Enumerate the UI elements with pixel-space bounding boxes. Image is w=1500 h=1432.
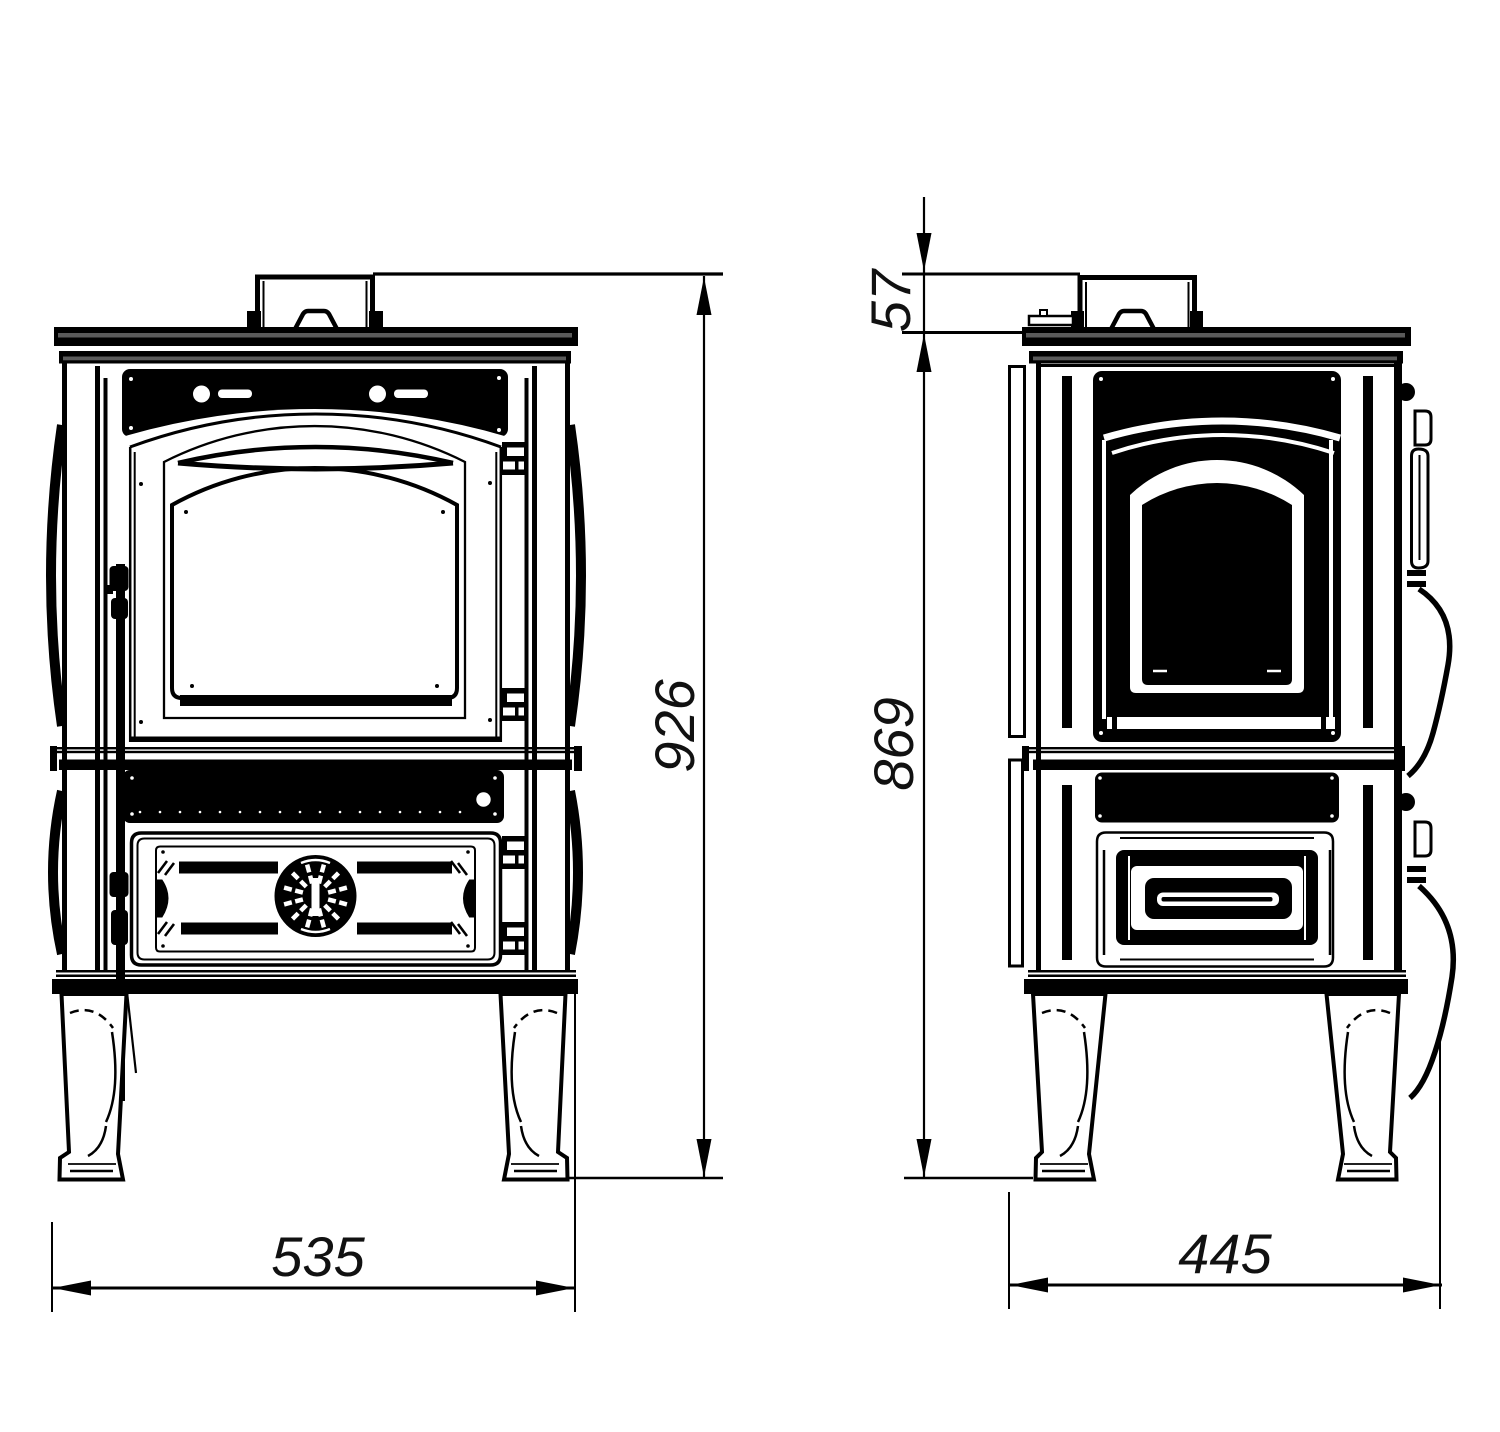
- svg-text:869: 869: [862, 697, 925, 790]
- svg-text:535: 535: [271, 1225, 365, 1288]
- svg-text:445: 445: [1178, 1222, 1272, 1285]
- svg-text:57: 57: [859, 268, 922, 332]
- svg-text:926: 926: [643, 678, 706, 772]
